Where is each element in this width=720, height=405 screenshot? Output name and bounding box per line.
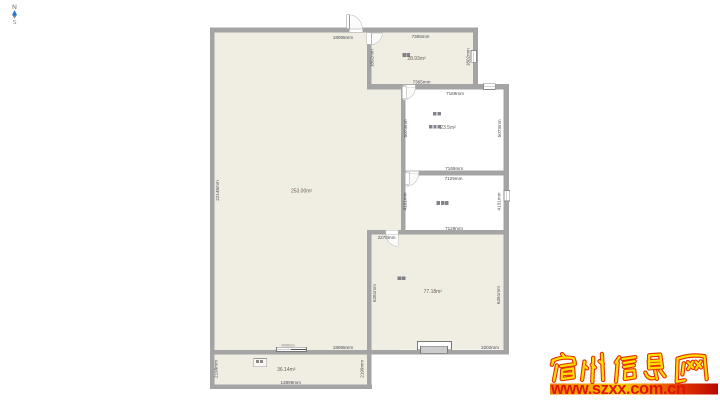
- svg-text:2270mm: 2270mm: [378, 235, 396, 240]
- svg-text:1802mm: 1802mm: [466, 48, 471, 66]
- svg-text:13899mm: 13899mm: [280, 380, 301, 385]
- svg-text:6261mm: 6261mm: [496, 286, 501, 304]
- svg-text:2202mm: 2202mm: [481, 345, 499, 350]
- svg-text:1802mm: 1802mm: [370, 49, 375, 67]
- svg-text:4131mm: 4131mm: [403, 192, 408, 210]
- svg-text:18065mm: 18065mm: [333, 35, 354, 40]
- svg-text:6261mm: 6261mm: [372, 284, 377, 302]
- svg-text:7169mm: 7169mm: [445, 166, 463, 171]
- svg-text:253.00m²: 253.00m²: [291, 188, 312, 194]
- svg-text:18065mm: 18065mm: [333, 345, 354, 350]
- svg-text:2199mm: 2199mm: [360, 360, 365, 378]
- svg-text:28.93m²: 28.93m²: [407, 56, 426, 62]
- svg-text:36.14m²: 36.14m²: [277, 367, 296, 373]
- svg-text:N: N: [12, 4, 17, 11]
- svg-text:2199mm: 2199mm: [213, 360, 218, 378]
- svg-text:7169mm: 7169mm: [446, 91, 464, 96]
- svg-text:7365mm: 7365mm: [413, 79, 431, 84]
- svg-text:4008mm: 4008mm: [281, 344, 294, 348]
- svg-text:5073mm: 5073mm: [497, 119, 502, 137]
- svg-text:5073mm: 5073mm: [403, 119, 408, 137]
- svg-text:77.18m²: 77.18m²: [424, 289, 443, 295]
- svg-text:S: S: [13, 20, 17, 26]
- svg-text:7365mm: 7365mm: [412, 34, 430, 39]
- svg-text:22146mm: 22146mm: [215, 180, 220, 201]
- svg-text:23.5m²: 23.5m²: [440, 125, 456, 131]
- svg-text:4131mm: 4131mm: [496, 192, 501, 210]
- svg-text:7129mm: 7129mm: [445, 176, 463, 181]
- svg-text:7129mm: 7129mm: [445, 226, 463, 231]
